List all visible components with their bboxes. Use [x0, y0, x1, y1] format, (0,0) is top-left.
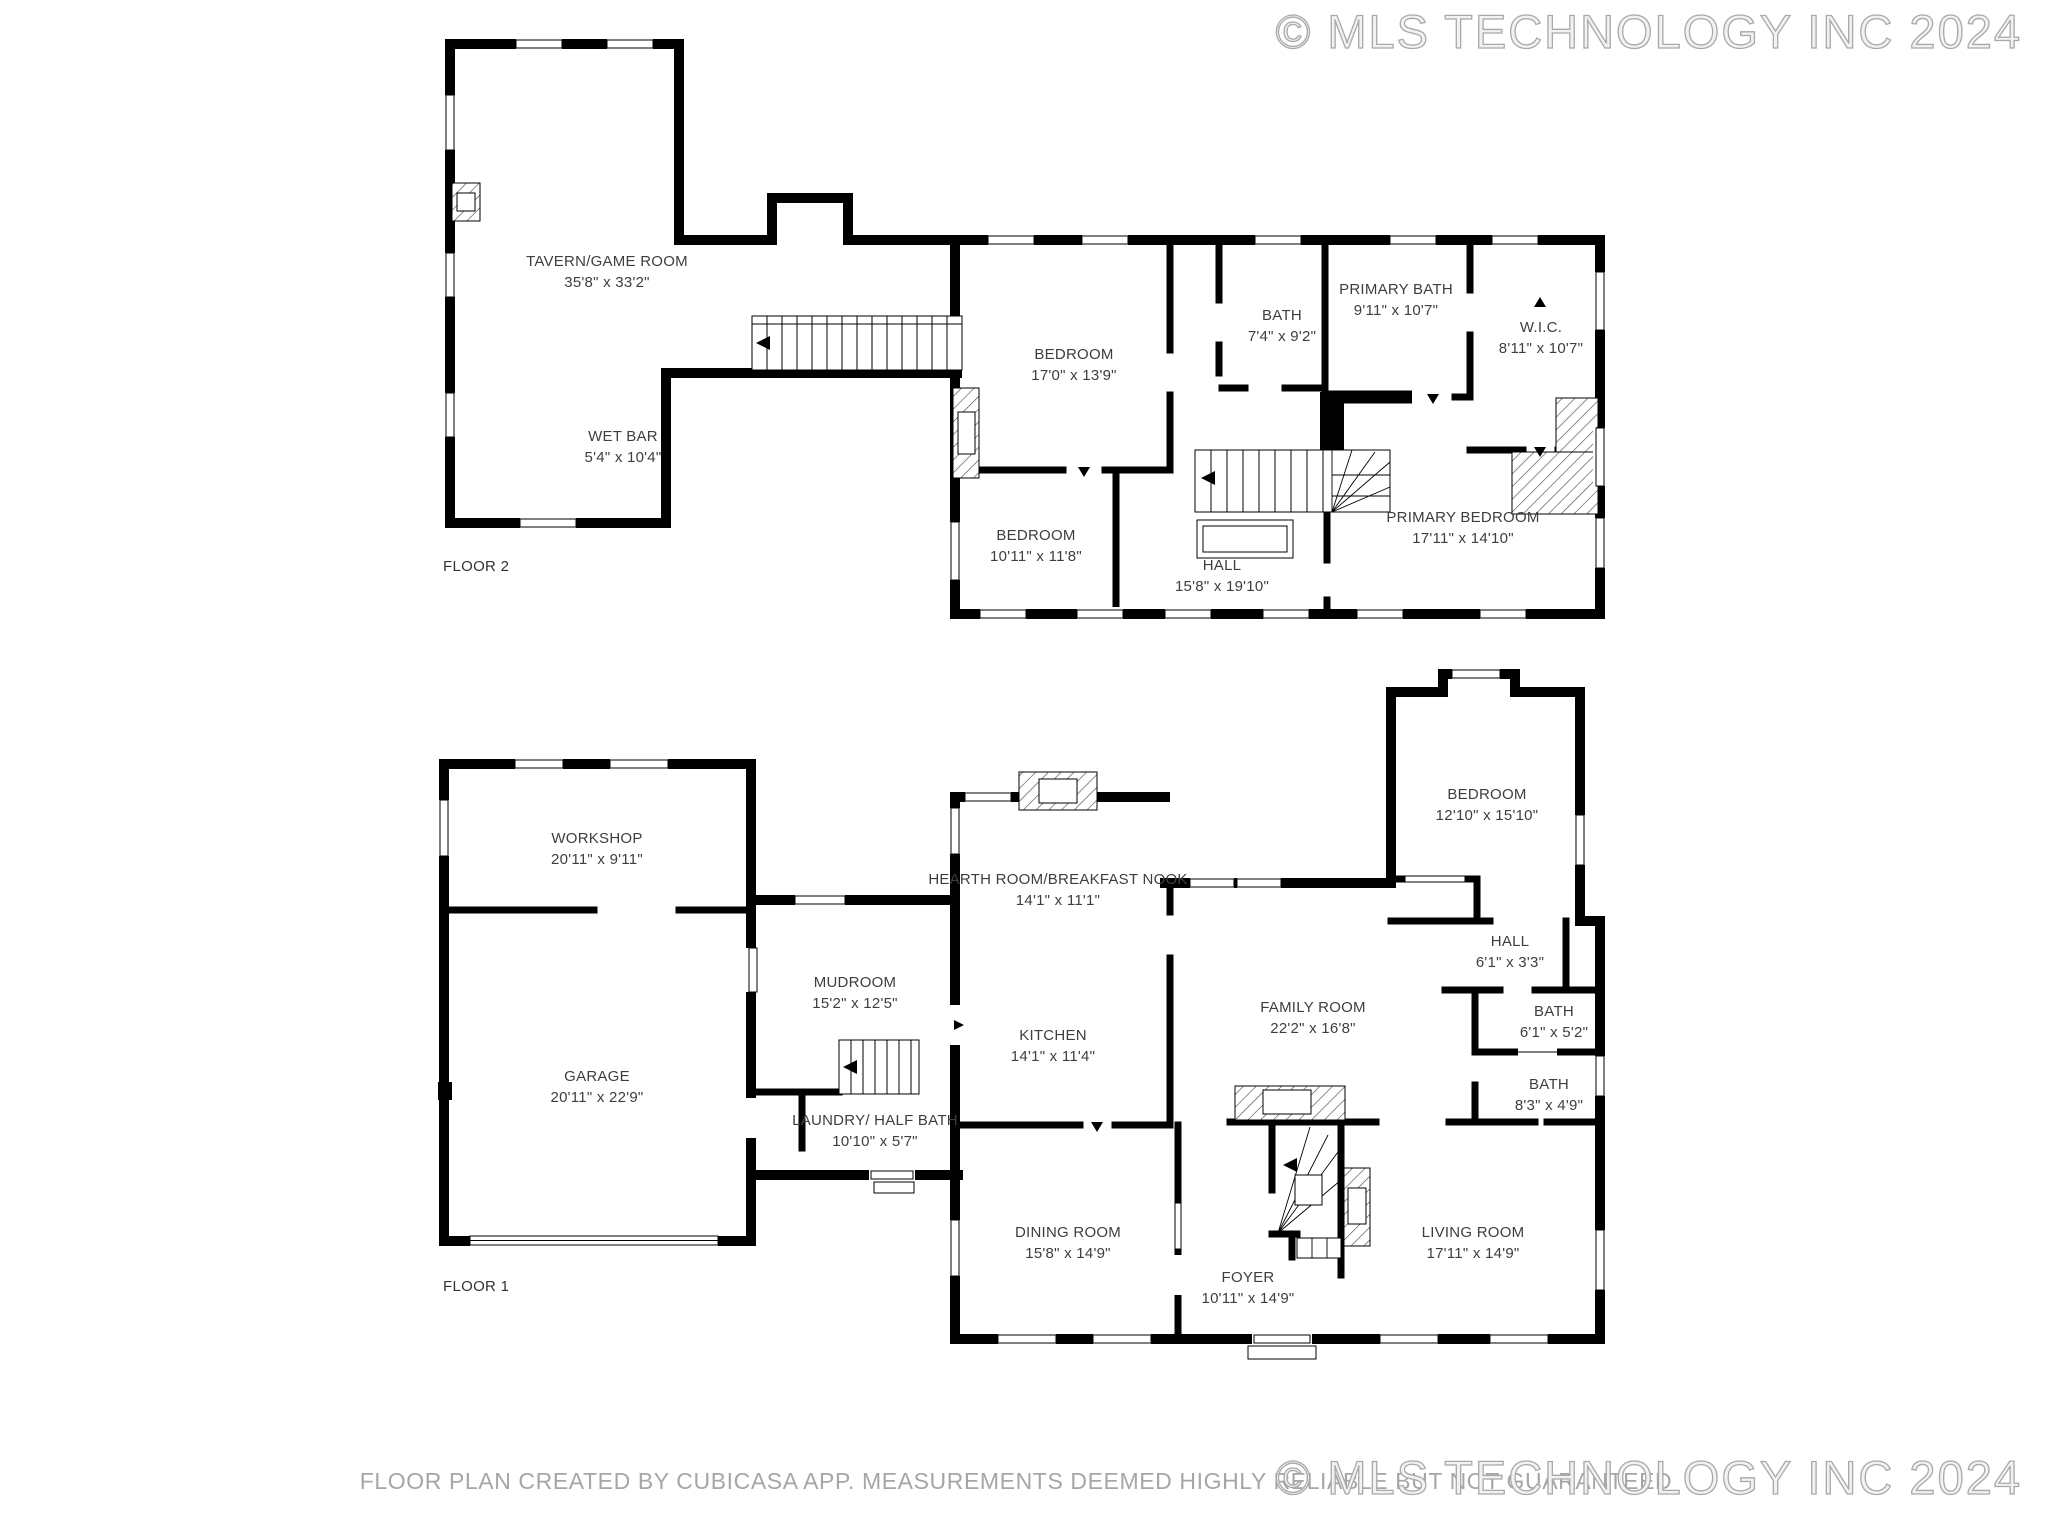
room-dims: 15'8" x 14'9" [1015, 1243, 1121, 1264]
room-label-hall-2f: HALL 15'8" x 19'10" [1175, 555, 1269, 597]
room-dims: 15'8" x 19'10" [1175, 576, 1269, 597]
room-name: FOYER [1202, 1267, 1295, 1288]
room-dims: 7'4" x 9'2" [1248, 326, 1316, 347]
fireplace-icon [452, 183, 480, 221]
room-name: LAUNDRY/ HALF BATH [792, 1110, 958, 1131]
staircase-icon [839, 1040, 919, 1094]
room-dims: 20'11" x 22'9" [551, 1087, 644, 1108]
bath-door [1518, 1046, 1557, 1058]
room-dims: 17'11" x 14'9" [1422, 1243, 1525, 1264]
floor1-label: FLOOR 1 [443, 1278, 509, 1295]
room-dims: 8'3" x 4'9" [1515, 1095, 1583, 1116]
room-label-bath-1f-a: BATH 6'1" x 5'2" [1520, 1001, 1588, 1043]
room-dims: 15'2" x 12'5" [812, 993, 898, 1014]
room-label-bedroom-1f: BEDROOM 12'10" x 15'10" [1436, 784, 1539, 826]
room-label-bedroom-2f-b: BEDROOM 10'11" x 11'8" [990, 525, 1082, 567]
room-label-wic: W.I.C. 8'11" x 10'7" [1499, 317, 1583, 359]
room-label-hall-1f: HALL 6'1" x 3'3" [1476, 931, 1544, 973]
room-dims: 17'0" x 13'9" [1031, 365, 1117, 386]
room-name: HEARTH ROOM/BREAKFAST NOOK [928, 869, 1187, 890]
floor2-label: FLOOR 2 [443, 558, 509, 575]
room-dims: 17'11" x 14'10" [1386, 528, 1539, 549]
room-name: BATH [1248, 305, 1316, 326]
room-name: GARAGE [551, 1066, 644, 1087]
room-label-living-room: LIVING ROOM 17'11" x 14'9" [1422, 1222, 1525, 1264]
fireplace-icon [1235, 1086, 1345, 1120]
room-dims: 8'11" x 10'7" [1499, 338, 1583, 359]
floor-plan-drawing [0, 0, 2048, 1536]
room-name: BATH [1520, 1001, 1588, 1022]
room-label-family-room: FAMILY ROOM 22'2" x 16'8" [1260, 997, 1366, 1039]
room-label-dining-room: DINING ROOM 15'8" x 14'9" [1015, 1222, 1121, 1264]
room-name: PRIMARY BATH [1339, 279, 1453, 300]
room-dims: 14'1" x 11'4" [1011, 1046, 1095, 1067]
room-dims: 5'4" x 10'4" [585, 447, 662, 468]
room-name: W.I.C. [1499, 317, 1583, 338]
room-name: HALL [1476, 931, 1544, 952]
room-name: WET BAR [585, 426, 662, 447]
room-label-garage: GARAGE 20'11" x 22'9" [551, 1066, 644, 1108]
room-name: HALL [1175, 555, 1269, 576]
floor1-interior-walls [444, 879, 1600, 1339]
staircase-icon [1195, 450, 1390, 558]
room-label-kitchen: KITCHEN 14'1" x 11'4" [1011, 1025, 1095, 1067]
room-label-hearth-room: HEARTH ROOM/BREAKFAST NOOK 14'1" x 11'1" [928, 869, 1187, 911]
room-dims: 12'10" x 15'10" [1436, 805, 1539, 826]
room-label-primary-bedroom: PRIMARY BEDROOM 17'11" x 14'10" [1386, 507, 1539, 549]
fireplace-icon [953, 388, 979, 478]
room-name: BATH [1515, 1074, 1583, 1095]
room-name: BEDROOM [1031, 344, 1117, 365]
room-dims: 35'8" x 33'2" [526, 272, 688, 293]
staircase-icon [1278, 1127, 1341, 1258]
room-dims: 10'11" x 11'8" [990, 546, 1082, 567]
room-name: FAMILY ROOM [1260, 997, 1366, 1018]
fireplace-icon [1019, 772, 1097, 810]
room-label-laundry-half-bath: LAUNDRY/ HALF BATH 10'10" x 5'7" [792, 1110, 958, 1152]
room-dims: 10'11" x 14'9" [1202, 1288, 1295, 1309]
room-label-tavern-game-room: TAVERN/GAME ROOM 35'8" x 33'2" [526, 251, 688, 293]
room-dims: 20'11" x 9'11" [551, 849, 643, 870]
room-name: KITCHEN [1011, 1025, 1095, 1046]
room-label-bedroom-2f-a: BEDROOM 17'0" x 13'9" [1031, 344, 1117, 386]
room-dims: 9'11" x 10'7" [1339, 300, 1453, 321]
front-door [1248, 1332, 1316, 1359]
floor-plan-page: FLOOR 2 FLOOR 1 TAVERN/GAME ROOM 35'8" x… [0, 0, 2048, 1536]
room-name: PRIMARY BEDROOM [1386, 507, 1539, 528]
room-dims: 6'1" x 3'3" [1476, 952, 1544, 973]
room-name: DINING ROOM [1015, 1222, 1121, 1243]
room-dims: 6'1" x 5'2" [1520, 1022, 1588, 1043]
fireplace-icon [1344, 1168, 1370, 1246]
wall-pier [438, 1082, 452, 1100]
disclaimer-text: FLOOR PLAN CREATED BY CUBICASA APP. MEAS… [360, 1468, 1673, 1495]
room-label-foyer: FOYER 10'11" x 14'9" [1202, 1267, 1295, 1309]
room-dims: 14'1" x 11'1" [928, 890, 1187, 911]
room-label-bath-1f-b: BATH 8'3" x 4'9" [1515, 1074, 1583, 1116]
door-arrow-icons [954, 297, 1546, 1132]
room-dims: 22'2" x 16'8" [1260, 1018, 1366, 1039]
hatched-closet [1512, 398, 1598, 514]
room-label-primary-bath: PRIMARY BATH 9'11" x 10'7" [1339, 279, 1453, 321]
room-label-bath-2f: BATH 7'4" x 9'2" [1248, 305, 1316, 347]
room-name: WORKSHOP [551, 828, 643, 849]
garage-door [470, 1234, 718, 1247]
room-label-wet-bar: WET BAR 5'4" x 10'4" [585, 426, 662, 468]
room-name: BEDROOM [1436, 784, 1539, 805]
room-dims: 10'10" x 5'7" [792, 1131, 958, 1152]
room-name: BEDROOM [990, 525, 1082, 546]
entry-door [869, 1168, 915, 1193]
staircase-icon [752, 316, 962, 370]
room-label-mudroom: MUDROOM 15'2" x 12'5" [812, 972, 898, 1014]
room-name: MUDROOM [812, 972, 898, 993]
room-name: TAVERN/GAME ROOM [526, 251, 688, 272]
room-label-workshop: WORKSHOP 20'11" x 9'11" [551, 828, 643, 870]
room-name: LIVING ROOM [1422, 1222, 1525, 1243]
